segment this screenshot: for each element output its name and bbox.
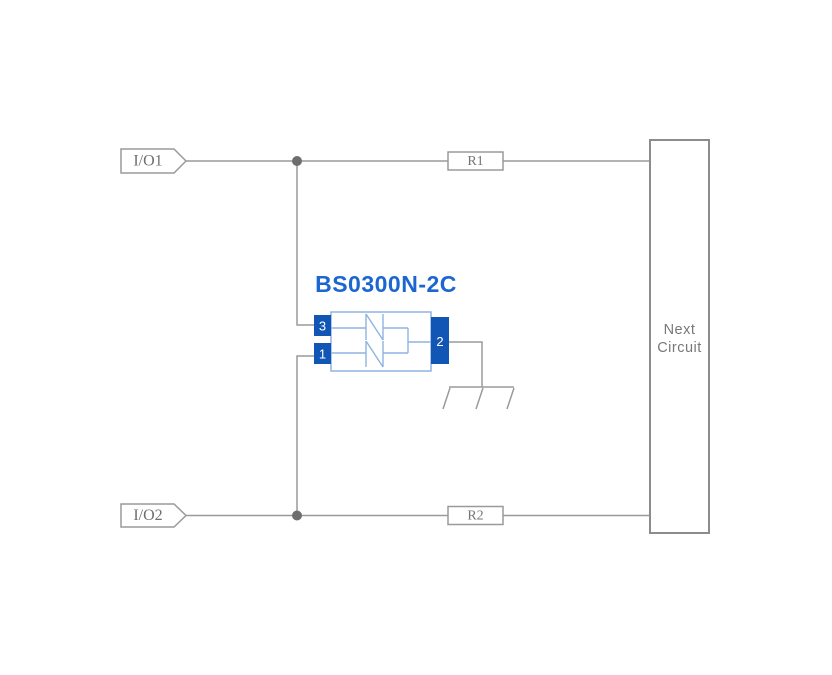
resistor-r2-label: R2 (467, 509, 483, 524)
junction-dot-bottom (292, 511, 302, 521)
next-circuit-label-line1: Next (664, 322, 696, 338)
schematic-canvas: I/O1 I/O2 R1 R2 Next Circuit BS0300N-2C (0, 0, 832, 675)
chassis-ground-icon (443, 387, 514, 409)
pin-3: 3 (314, 315, 331, 336)
junction-dot-top (292, 156, 302, 166)
pin-3-number: 3 (319, 319, 326, 334)
port-io2-label: I/O2 (133, 507, 162, 524)
ground-hash-2 (476, 388, 483, 409)
tvs-diode-component: BS0300N-2C (314, 271, 457, 371)
next-circuit-label-line2: Circuit (657, 340, 702, 356)
ground-hash-1 (443, 388, 450, 409)
pin-1-number: 1 (319, 347, 326, 362)
ground-hash-3 (507, 388, 514, 409)
component-part-number: BS0300N-2C (315, 271, 457, 297)
port-io1-label: I/O1 (133, 153, 162, 170)
wire-junction-to-pin1 (297, 356, 314, 516)
resistor-r2: R2 (448, 507, 503, 525)
next-circuit-block: Next Circuit (650, 140, 709, 533)
pin-2: 2 (431, 317, 449, 364)
resistor-r1-label: R1 (467, 154, 483, 169)
port-io2: I/O2 (121, 504, 186, 527)
circuit-schematic: I/O1 I/O2 R1 R2 Next Circuit BS0300N-2C (0, 0, 832, 675)
wire-pin2-to-ground (449, 342, 482, 387)
resistor-r1: R1 (448, 152, 503, 170)
pin-2-number: 2 (436, 334, 443, 349)
wire-junction-to-pin3 (297, 161, 314, 325)
pin-1: 1 (314, 343, 331, 364)
port-io1: I/O1 (121, 149, 186, 173)
